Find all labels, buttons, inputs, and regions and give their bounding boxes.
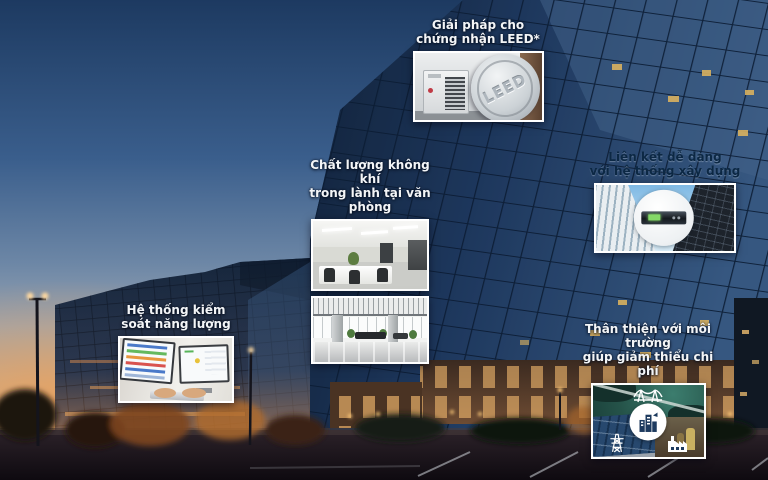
- energy-monitoring-image: [118, 336, 234, 403]
- office-doorway: [380, 243, 393, 263]
- lg-building-solutions-banner: Giải pháp cho chứng nhận LEED* LEED Chất…: [0, 0, 768, 480]
- title-line: chứng nhận LEED*: [396, 32, 560, 46]
- outdoor-hvac-unit: [423, 70, 469, 114]
- lobby-sofa-small: [393, 333, 408, 339]
- callout-leed-title: Giải pháp cho chứng nhận LEED*: [396, 18, 560, 46]
- spreadsheet-screen: [122, 340, 174, 382]
- app-toolbar: [185, 350, 194, 353]
- office-plant: [348, 252, 359, 265]
- app-list-pane: [205, 350, 226, 374]
- controller-lcd-screen: [648, 214, 660, 220]
- callout-air-quality: Chất lượng không khí trong lành tại văn …: [300, 158, 440, 364]
- controller-button: [677, 216, 680, 219]
- lobby-plant: [409, 330, 417, 339]
- callout-air-quality-title: Chất lượng không khí trong lành tại văn …: [300, 158, 440, 214]
- callout-eco-friendly-title: Thân thiện với môi trường giúp giảm thiể…: [578, 322, 718, 378]
- lobby-interior-image: [311, 296, 429, 364]
- title-line: Thân thiện với môi trường: [578, 322, 718, 350]
- title-line: Giải pháp cho: [396, 18, 560, 32]
- title-line: Hệ thống kiểm: [109, 303, 243, 317]
- hand: [182, 388, 206, 398]
- data-row: [125, 367, 165, 373]
- controller-image: [594, 183, 736, 253]
- controller-inset-circle: [634, 190, 694, 246]
- central-controller-device: [641, 211, 686, 224]
- callout-building-system-title: Liên kết dễ dàng với hệ thống xây dựng: [582, 150, 748, 178]
- title-line: với hệ thống xây dựng: [582, 164, 748, 178]
- callout-energy-control-title: Hệ thống kiểm soát năng lượng: [109, 303, 243, 331]
- status-dot: [195, 359, 200, 364]
- power-pylon-icon: [608, 431, 626, 453]
- title-line: Chất lượng không khí: [300, 158, 440, 186]
- leed-coin: LEED: [471, 54, 540, 122]
- data-row: [126, 361, 166, 367]
- lobby-sofa: [355, 332, 386, 339]
- leed-coin-text: LEED: [480, 70, 530, 107]
- office-chair: [324, 268, 335, 282]
- office-interior-image: [311, 219, 429, 291]
- lobby-reflective-floor: [313, 342, 427, 362]
- callout-energy-control: Hệ thống kiểm soát năng lượng: [109, 303, 243, 403]
- bridge-icon: [632, 388, 664, 404]
- controller-button: [672, 216, 675, 219]
- office-chair: [349, 270, 360, 284]
- data-row: [125, 373, 165, 379]
- right-monitor: [179, 344, 231, 384]
- factory-icon: [666, 433, 690, 453]
- eco-collage-image: [591, 383, 706, 459]
- title-line: trong lành tại văn phòng: [300, 186, 440, 214]
- leed-image: LEED: [413, 51, 544, 122]
- data-row: [127, 343, 167, 349]
- app-window-screen: [181, 346, 229, 381]
- data-row: [127, 349, 167, 355]
- office-dark-corner: [408, 240, 427, 270]
- left-monitor: [119, 338, 175, 384]
- callout-building-system-link: Liên kết dễ dàng với hệ thống xây dựng: [582, 150, 748, 253]
- callout-leed-certification: Giải pháp cho chứng nhận LEED* LEED: [396, 18, 560, 122]
- callout-eco-friendly: Thân thiện với môi trường giúp giảm thiể…: [578, 322, 718, 459]
- city-buildings-icon: [636, 411, 660, 433]
- lobby-slat-ceiling: [313, 298, 427, 316]
- data-row: [126, 355, 166, 361]
- title-line: soát năng lượng: [109, 317, 243, 331]
- title-line: giúp giảm thiểu chi phí: [578, 350, 718, 378]
- office-chair: [377, 268, 388, 282]
- city-circle-badge: [630, 403, 667, 440]
- hvac-vent: [428, 74, 441, 78]
- hvac-grille: [445, 77, 466, 110]
- lg-logo-dot: [428, 88, 433, 93]
- title-line: Liên kết dễ dàng: [582, 150, 748, 164]
